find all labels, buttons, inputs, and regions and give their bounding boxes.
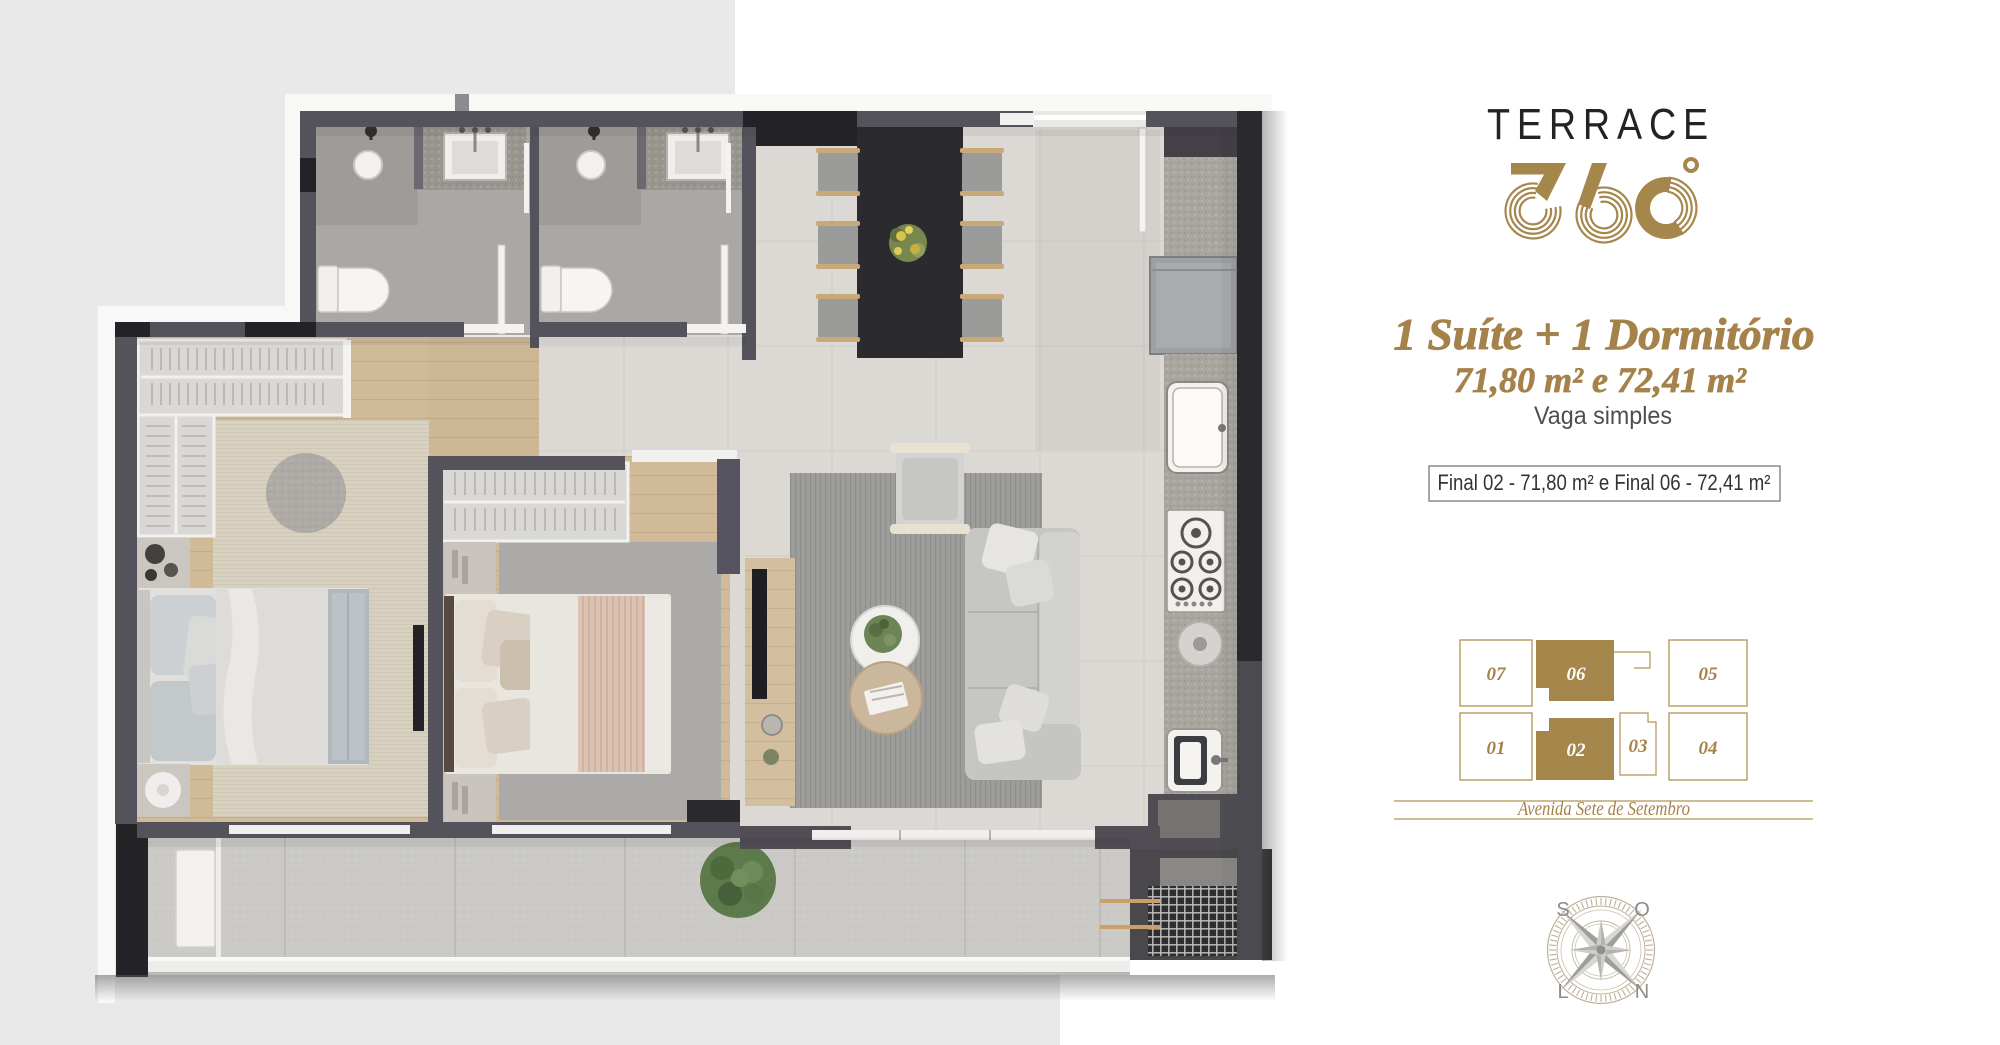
svg-text:71,80 m² e 72,41 m²: 71,80 m² e 72,41 m² bbox=[1454, 360, 1747, 400]
svg-text:N: N bbox=[1635, 981, 1649, 1003]
svg-text:TERRACE: TERRACE bbox=[1487, 100, 1715, 149]
svg-text:02: 02 bbox=[1567, 740, 1587, 761]
svg-text:Final 02 - 71,80 m² e Final 06: Final 02 - 71,80 m² e Final 06 - 72,41 m… bbox=[1438, 470, 1771, 495]
svg-text:03: 03 bbox=[1629, 736, 1648, 757]
svg-text:04: 04 bbox=[1699, 738, 1718, 759]
svg-text:07: 07 bbox=[1487, 664, 1508, 685]
svg-text:05: 05 bbox=[1699, 664, 1719, 685]
svg-text:O: O bbox=[1634, 899, 1650, 921]
svg-text:1 Suíte + 1 Dormitório: 1 Suíte + 1 Dormitório bbox=[1394, 310, 1815, 359]
svg-text:Avenida Sete de Setembro: Avenida Sete de Setembro bbox=[1516, 798, 1690, 820]
svg-text:01: 01 bbox=[1487, 738, 1506, 759]
svg-text:Vaga simples: Vaga simples bbox=[1534, 402, 1672, 430]
svg-text:S: S bbox=[1556, 899, 1569, 921]
svg-text:L: L bbox=[1557, 981, 1568, 1003]
svg-text:06: 06 bbox=[1567, 664, 1587, 685]
